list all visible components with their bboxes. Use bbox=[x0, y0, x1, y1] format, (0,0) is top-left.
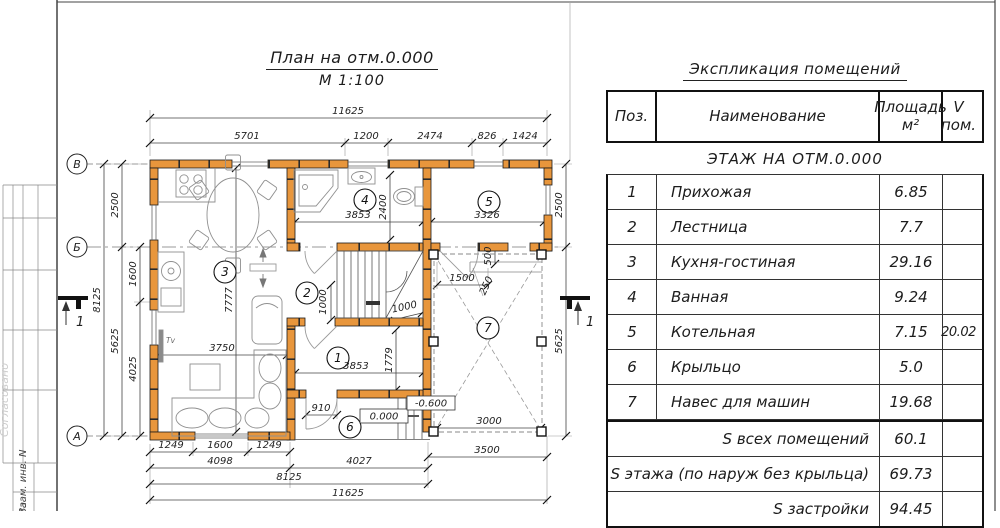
svg-text:5625: 5625 bbox=[554, 328, 565, 353]
tv-icon bbox=[159, 330, 163, 362]
svg-text:826: 826 bbox=[477, 131, 496, 142]
stove-icon bbox=[176, 170, 206, 197]
header-pos: Поз. bbox=[608, 92, 657, 141]
section-mark-left: 1 bbox=[58, 296, 88, 330]
plan-title-text: План на отм.0.000 bbox=[266, 48, 438, 70]
table-row: 1Прихожая 6.85 bbox=[608, 175, 982, 210]
table-title: Экспликация помещений bbox=[606, 60, 984, 86]
svg-text:5625: 5625 bbox=[110, 328, 121, 353]
svg-text:3500: 3500 bbox=[474, 445, 499, 456]
svg-text:11625: 11625 bbox=[332, 106, 364, 117]
margin-date-label: та bbox=[18, 502, 29, 511]
svg-text:7: 7 bbox=[484, 321, 492, 335]
table-header-row: Поз. Наименование Площадьм² Vпом. bbox=[606, 90, 984, 143]
summary-row: S всех помещений 60.1 bbox=[608, 420, 982, 457]
svg-text:1500: 1500 bbox=[449, 273, 474, 284]
svg-text:2: 2 bbox=[303, 286, 311, 300]
svg-text:4025: 4025 bbox=[128, 356, 139, 381]
sofa bbox=[172, 350, 286, 436]
svg-text:5701: 5701 bbox=[234, 131, 259, 142]
plan-title: План на отм.0.000 М 1:100 bbox=[262, 48, 442, 89]
svg-text:1249: 1249 bbox=[158, 440, 183, 451]
table-row: 6Крыльцо 5.0 bbox=[608, 350, 982, 385]
svg-text:11625: 11625 bbox=[332, 488, 364, 499]
svg-text:1600: 1600 bbox=[207, 440, 232, 451]
toilet-icon bbox=[394, 187, 424, 206]
svg-text:4: 4 bbox=[361, 193, 369, 207]
bathtub-icon bbox=[294, 170, 338, 212]
sink-icon bbox=[158, 252, 184, 312]
table-section-title: ЭТАЖ НА ОТМ.0.000 bbox=[606, 143, 984, 174]
svg-text:2500: 2500 bbox=[110, 192, 121, 217]
svg-text:3750: 3750 bbox=[209, 343, 234, 354]
svg-text:8125: 8125 bbox=[92, 287, 103, 312]
svg-text:2474: 2474 bbox=[417, 131, 442, 142]
axis-label-v: В bbox=[73, 158, 81, 171]
room-bubbles bbox=[214, 189, 500, 438]
header-name: Наименование bbox=[657, 92, 880, 141]
coffee-table bbox=[190, 364, 220, 390]
svg-text:3: 3 bbox=[221, 265, 229, 279]
svg-text:1: 1 bbox=[334, 351, 342, 365]
svg-text:1779: 1779 bbox=[384, 347, 395, 372]
svg-text:1424: 1424 bbox=[512, 131, 537, 142]
svg-text:1249: 1249 bbox=[256, 440, 281, 451]
table-body: 1Прихожая 6.85 2Лестница 7.7 3Кухня-гост… bbox=[606, 174, 984, 528]
section-mark-right: 1 bbox=[560, 296, 594, 330]
kitchen-fixtures bbox=[158, 155, 277, 312]
svg-text:3853: 3853 bbox=[343, 361, 368, 372]
margin-inv-label: Взам. инв. N bbox=[18, 449, 29, 511]
svg-text:4027: 4027 bbox=[346, 456, 372, 467]
svg-text:3326: 3326 bbox=[474, 210, 499, 221]
table-row: 2Лестница 7.7 bbox=[608, 210, 982, 245]
section-label: 1 bbox=[586, 315, 594, 330]
svg-text:1600: 1600 bbox=[128, 261, 139, 286]
svg-text:2500: 2500 bbox=[554, 192, 565, 217]
opening-arrows bbox=[250, 249, 276, 287]
margin-approved-label: Согласовано bbox=[0, 363, 11, 437]
level-zero: 0.000 bbox=[370, 412, 399, 423]
header-area: Площадьм² bbox=[880, 92, 943, 141]
svg-text:6: 6 bbox=[346, 420, 354, 434]
header-volume: Vпом. bbox=[943, 92, 974, 141]
svg-text:250: 250 bbox=[478, 275, 496, 297]
svg-text:4098: 4098 bbox=[207, 456, 232, 467]
room-schedule-table: Экспликация помещений Поз. Наименование … bbox=[606, 60, 984, 528]
svg-text:3853: 3853 bbox=[345, 210, 370, 221]
section-label: 1 bbox=[76, 315, 84, 330]
table-row: 3Кухня-гостиная 29.16 bbox=[608, 245, 982, 280]
summary-row: S застройки 94.45 bbox=[608, 492, 982, 526]
svg-text:1200: 1200 bbox=[353, 131, 378, 142]
table-row: 5Котельная 7.1520.02 bbox=[608, 315, 982, 350]
svg-text:7777: 7777 bbox=[224, 287, 235, 313]
axis-label-b: Б bbox=[73, 241, 81, 254]
level-minus: -0.600 bbox=[415, 399, 447, 410]
svg-text:500: 500 bbox=[483, 246, 494, 265]
table-row: 4Ванная 9.24 bbox=[608, 280, 982, 315]
svg-text:8125: 8125 bbox=[276, 472, 301, 483]
svg-text:3000: 3000 bbox=[476, 416, 501, 427]
svg-text:1000: 1000 bbox=[318, 289, 329, 314]
svg-text:2400: 2400 bbox=[378, 194, 389, 219]
table-row: 7Навес для машин 19.68 bbox=[608, 385, 982, 420]
svg-text:910: 910 bbox=[311, 403, 330, 414]
svg-text:5: 5 bbox=[485, 195, 493, 209]
drawing-sheet: Согласовано Взам. инв. N та bbox=[0, 0, 1000, 511]
axis-label-a: А bbox=[72, 430, 81, 443]
lounge-chair bbox=[252, 296, 282, 344]
living-fixtures bbox=[159, 296, 286, 436]
tv-label: Tv bbox=[166, 336, 176, 345]
washbasin-icon bbox=[348, 168, 375, 184]
plan-scale: М 1:100 bbox=[262, 73, 442, 89]
summary-row: S этажа (по наруж без крыльца) 69.73 bbox=[608, 457, 982, 492]
